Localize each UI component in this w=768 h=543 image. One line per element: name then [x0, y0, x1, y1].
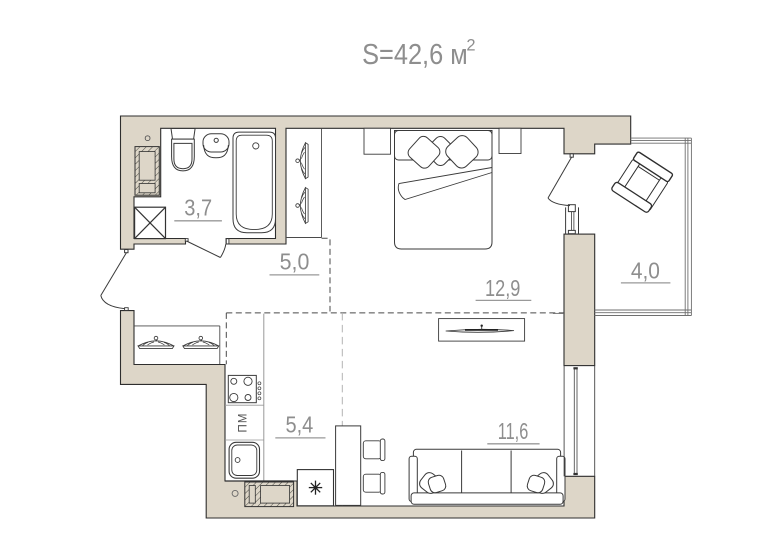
svg-text:3,7: 3,7	[184, 194, 212, 221]
svg-text:5,0: 5,0	[280, 249, 310, 275]
svg-text:12,9: 12,9	[485, 276, 520, 302]
svg-text:S=42,6 м: S=42,6 м	[362, 39, 468, 71]
svg-text:4,0: 4,0	[631, 257, 660, 283]
svg-text:ПМ: ПМ	[238, 413, 250, 433]
svg-text:5,4: 5,4	[285, 411, 313, 438]
svg-text:2: 2	[466, 36, 475, 54]
svg-text:11,6: 11,6	[498, 419, 529, 444]
